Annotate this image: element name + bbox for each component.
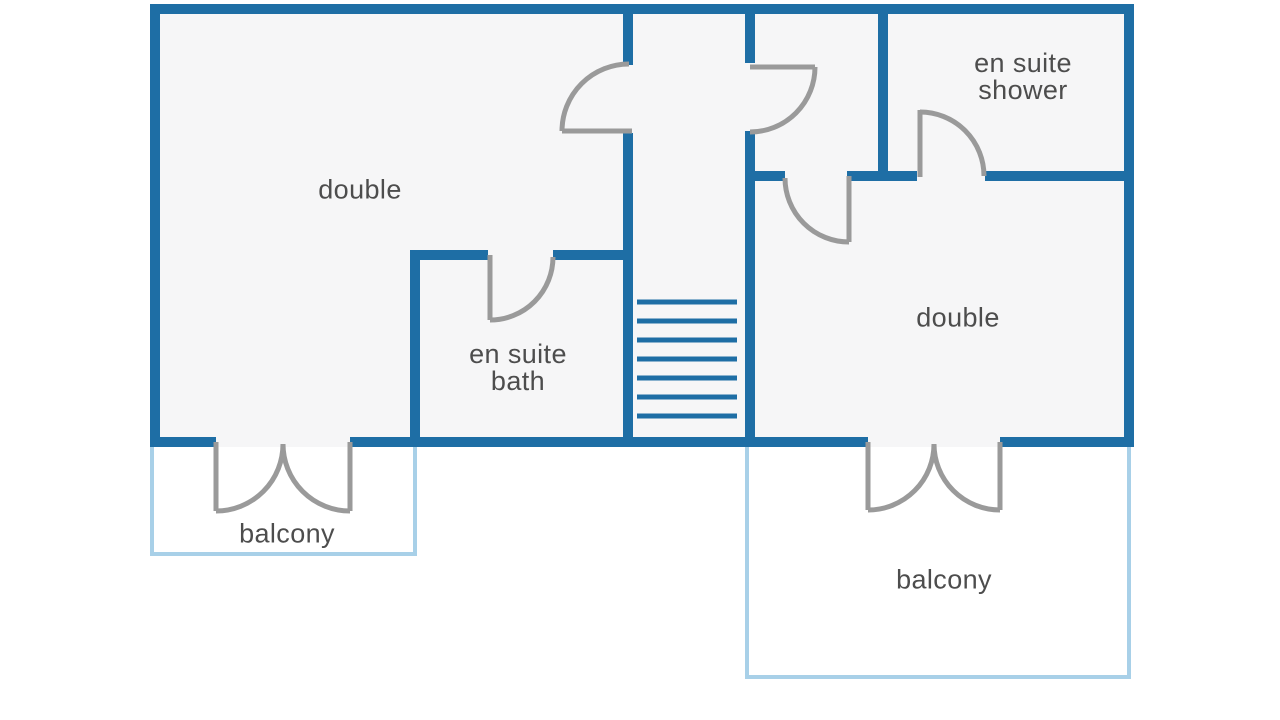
- door-swing-arc: [216, 444, 283, 511]
- room-label-line: en suite: [974, 50, 1072, 77]
- room-label-double-left: double: [318, 177, 401, 204]
- room-label-line: bath: [469, 368, 567, 395]
- balcony-right-outline: [747, 447, 1129, 677]
- door-swing-arc: [934, 444, 1000, 510]
- stairs: [637, 302, 737, 416]
- room-label-balcony-right: balcony: [896, 567, 992, 594]
- balconies: [152, 447, 1129, 677]
- door-swing-arc: [283, 444, 350, 511]
- floor-plan: double en suite bath en suite shower dou…: [0, 0, 1280, 720]
- room-label-balcony-left: balcony: [239, 521, 335, 548]
- room-label-en-suite-shower: en suite shower: [974, 50, 1072, 104]
- room-label-en-suite-bath: en suite bath: [469, 341, 567, 395]
- floor-plan-drawing: [0, 0, 1280, 720]
- door-swing-arc: [868, 444, 934, 510]
- room-label-line: shower: [974, 77, 1072, 104]
- room-label-double-right: double: [916, 305, 999, 332]
- room-label-line: en suite: [469, 341, 567, 368]
